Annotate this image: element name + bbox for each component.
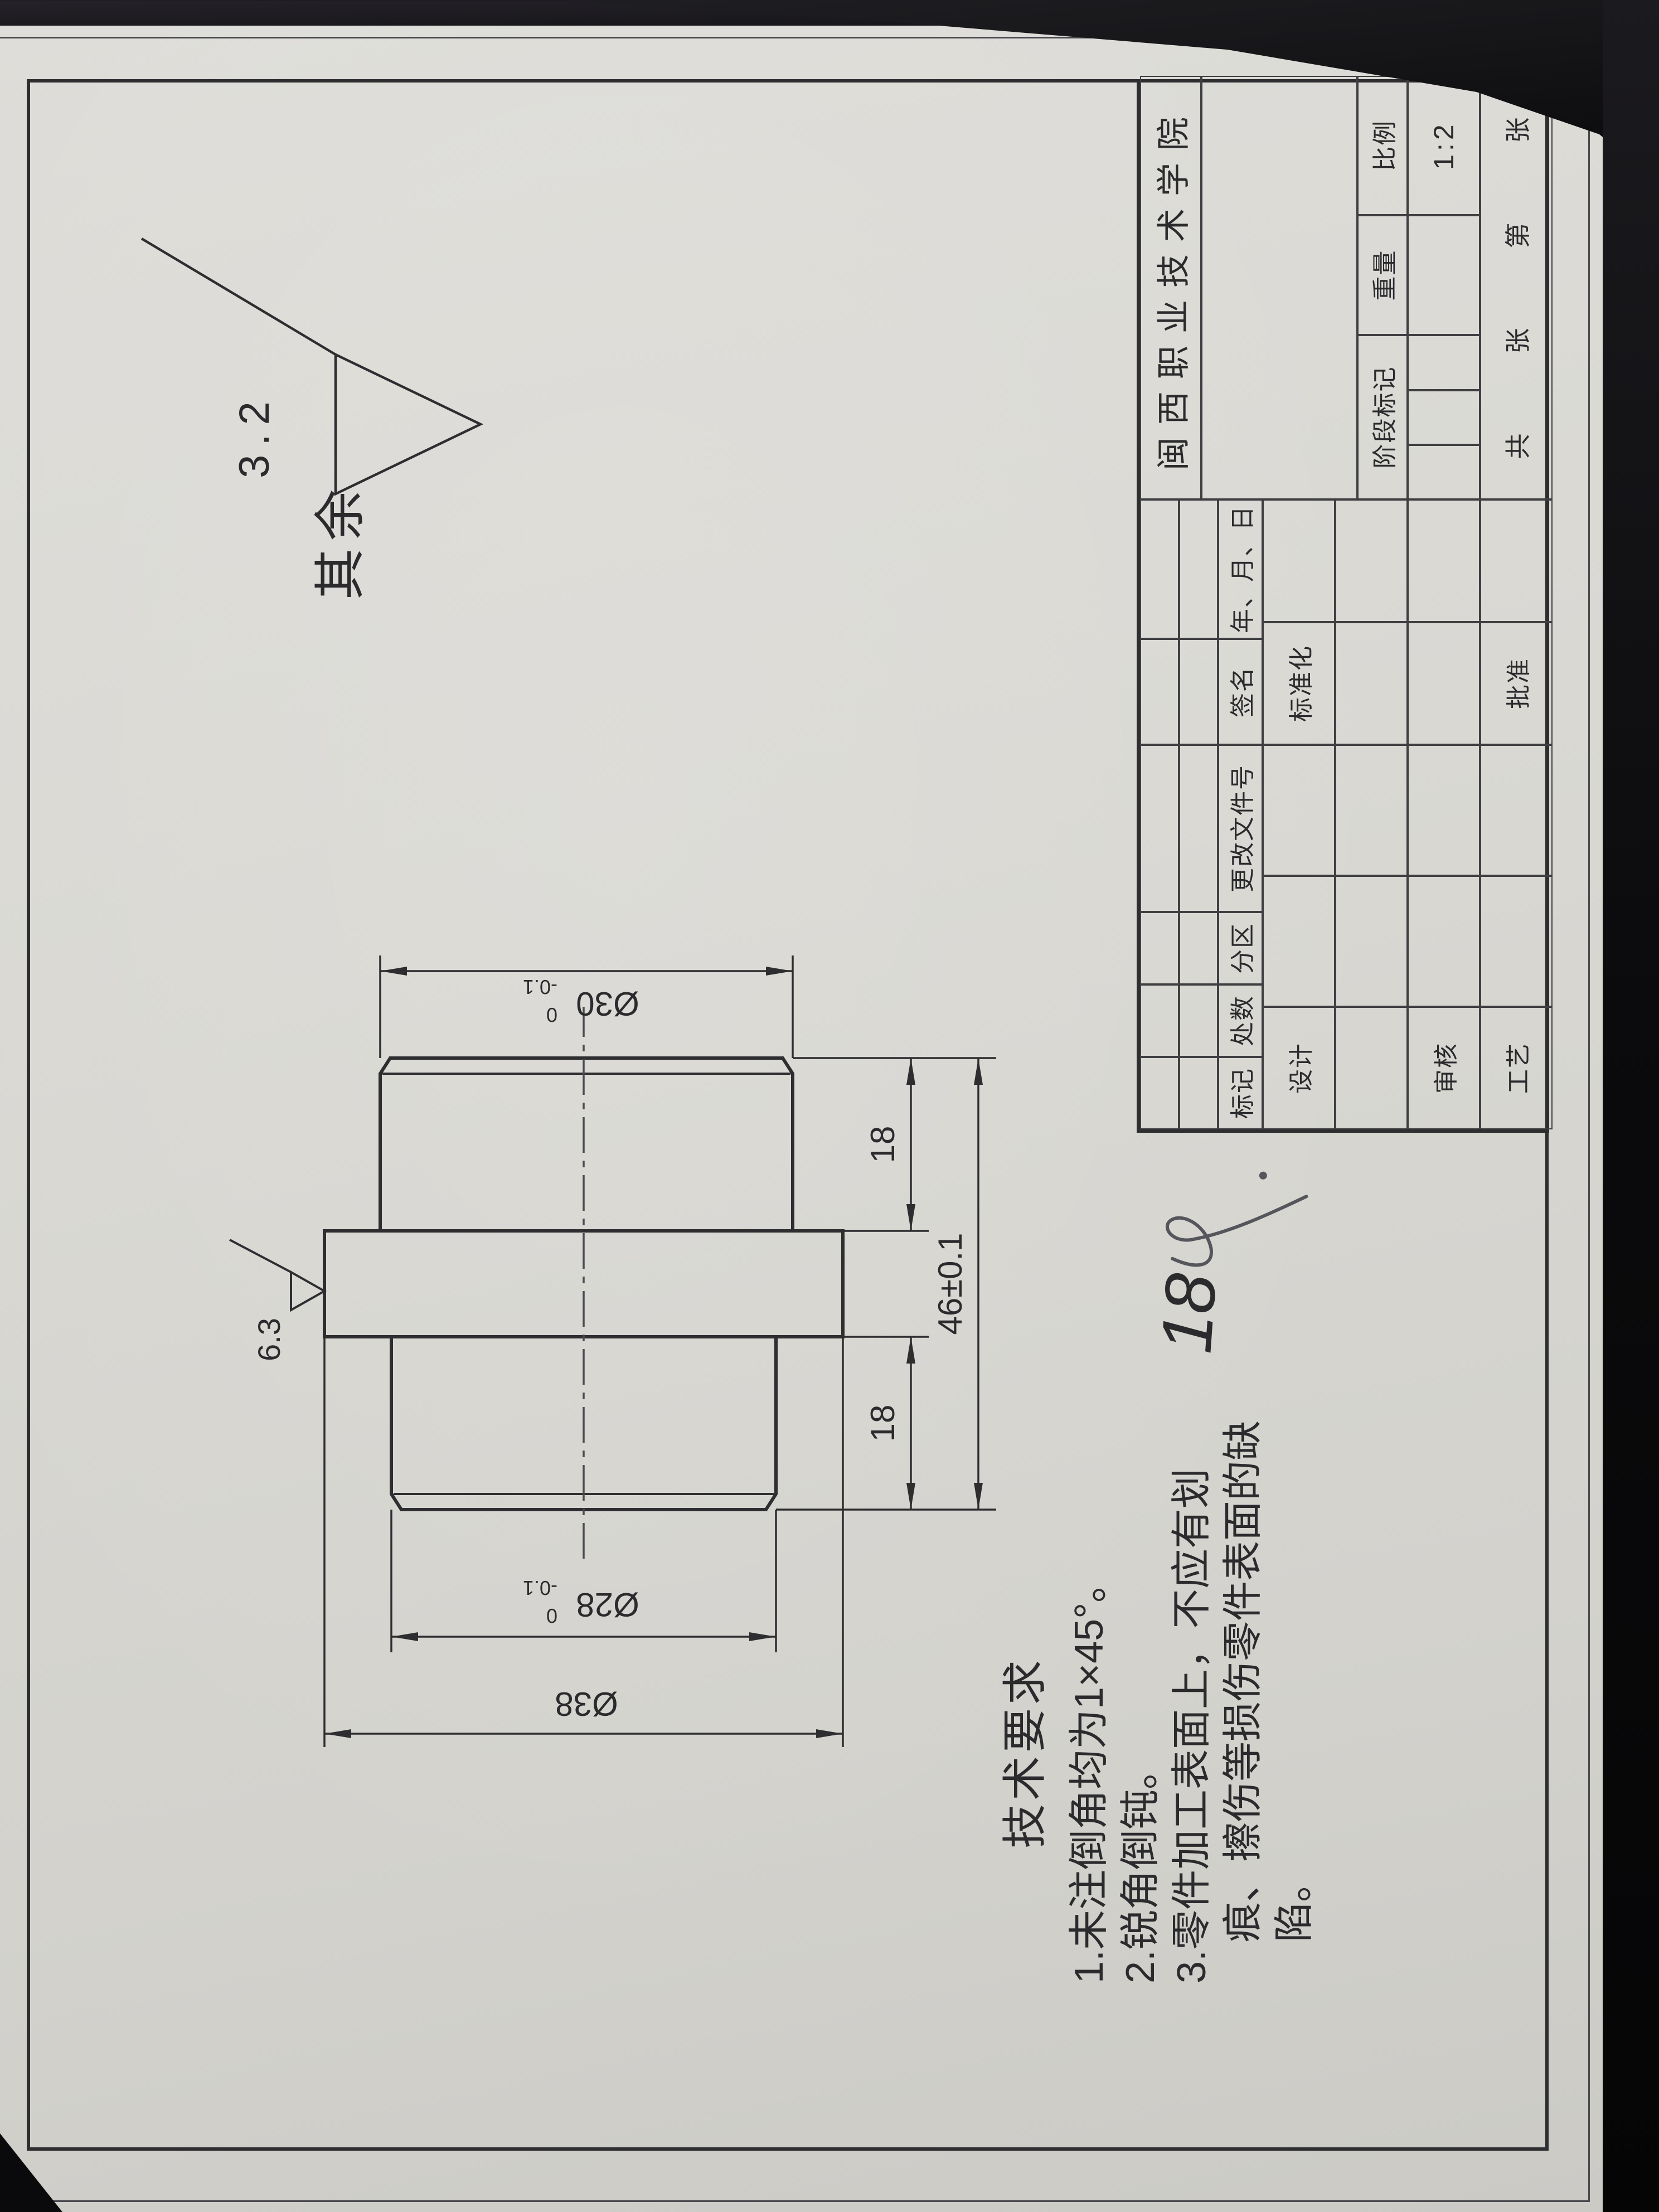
tech-req-line: 1.未注倒角均为1×45°。 bbox=[1064, 1292, 1115, 1983]
stage-mark-label: 阶段标记 bbox=[1357, 335, 1408, 499]
tech-req-line: 痕、擦伤等损伤零件表面的缺 bbox=[1217, 1292, 1269, 1942]
sig-blank-cell bbox=[1263, 876, 1335, 1007]
paper-sheet: Ø30 0 -0.1 Ø28 0 -0.1 Ø38 18 18 46±0.1 bbox=[0, 26, 1603, 2212]
weight-value-blank bbox=[1408, 215, 1480, 335]
sig-blank-cell bbox=[1408, 499, 1480, 622]
handwritten-dot bbox=[1259, 1171, 1267, 1180]
revision-header-date: 年、月、日 bbox=[1218, 499, 1263, 639]
revision-blank-cell bbox=[1179, 984, 1218, 1057]
handwritten-flourish bbox=[1165, 1187, 1306, 1272]
sheets-number-unit: 张 bbox=[1498, 117, 1535, 143]
sig-blank-cell bbox=[1408, 622, 1480, 745]
dim-18-left: 18 bbox=[864, 1405, 901, 1442]
technical-requirements: 技术要求 1.未注倒角均为1×45°。 2.锐角倒钝。 3.零件加工表面上，不应… bbox=[989, 1292, 1320, 1983]
sig-blank-cell bbox=[1263, 745, 1335, 876]
svg-text:-0.1: -0.1 bbox=[523, 976, 557, 998]
sig-blank-cell bbox=[1335, 745, 1408, 876]
role-approve: 批准 bbox=[1480, 622, 1553, 745]
sig-blank-cell bbox=[1480, 499, 1553, 622]
sig-blank-cell bbox=[1335, 1007, 1408, 1129]
dimension-arrowheads bbox=[324, 967, 983, 1738]
svg-text:Ø38: Ø38 bbox=[555, 1685, 618, 1723]
stage-mark-box bbox=[1408, 390, 1480, 445]
revision-blank-cell bbox=[1140, 499, 1179, 639]
svg-text:-0.1: -0.1 bbox=[523, 1576, 557, 1599]
tech-req-line: 3.零件加工表面上，不应有划 bbox=[1166, 1292, 1217, 1983]
revision-blank-cell bbox=[1140, 984, 1179, 1057]
role-standardization: 标准化 bbox=[1263, 622, 1335, 745]
sig-blank-cell bbox=[1335, 876, 1408, 1007]
roughness-rest-value: 3.2 bbox=[231, 392, 278, 478]
revision-blank-cell bbox=[1140, 1057, 1179, 1129]
sig-blank-cell bbox=[1480, 745, 1553, 876]
title-block: 标记 处数 分区 更改文件号 签名 年、月、日 设计 标准化 审核 bbox=[1137, 79, 1549, 1133]
tech-req-heading: 技术要求 bbox=[989, 1292, 1054, 1849]
role-process: 工艺 bbox=[1480, 1007, 1553, 1129]
stage-mark-box bbox=[1408, 335, 1480, 390]
revision-blank-cell bbox=[1140, 912, 1179, 984]
roughness-6-3-icon bbox=[230, 1240, 324, 1310]
svg-text:0: 0 bbox=[546, 1604, 557, 1627]
scale-label: 比例 bbox=[1357, 76, 1408, 215]
roughness-6-3-value: 6.3 bbox=[251, 1318, 287, 1361]
background-shadow-right-edge bbox=[1603, 0, 1659, 2212]
scale-value: 1:2 bbox=[1408, 76, 1480, 215]
roughness-rest-icon bbox=[142, 239, 481, 494]
dim-d28: Ø28 0 -0.1 bbox=[523, 1576, 639, 1627]
cylinder-30-outline bbox=[380, 1058, 793, 1231]
dim-46-total: 46±0.1 bbox=[932, 1233, 969, 1335]
sheets-total-unit: 张 bbox=[1498, 327, 1535, 354]
revision-header-count: 处数 bbox=[1218, 984, 1263, 1057]
part-name-blank-cell bbox=[1201, 76, 1357, 499]
tech-req-line: 2.锐角倒钝。 bbox=[1115, 1292, 1166, 1983]
revision-blank-cell bbox=[1140, 639, 1179, 745]
dim-d30: Ø30 0 -0.1 bbox=[523, 976, 639, 1026]
sig-blank-cell bbox=[1408, 876, 1480, 1007]
sig-blank-cell bbox=[1480, 876, 1553, 1007]
revision-blank-cell bbox=[1179, 499, 1218, 639]
sheet-count-row: 共 张 第 张 bbox=[1480, 76, 1553, 499]
dim-18-right: 18 bbox=[864, 1126, 901, 1163]
revision-blank-cell bbox=[1140, 745, 1179, 912]
revision-blank-cell bbox=[1179, 745, 1218, 912]
svg-text:Ø28: Ø28 bbox=[576, 1586, 639, 1623]
dim-d38: Ø38 bbox=[555, 1685, 618, 1723]
sig-blank-cell bbox=[1263, 499, 1335, 622]
stage-mark-box bbox=[1408, 445, 1480, 499]
revision-header-zone: 分区 bbox=[1218, 912, 1263, 984]
photo-of-engineering-drawing: Ø30 0 -0.1 Ø28 0 -0.1 Ø38 18 18 46±0.1 bbox=[0, 0, 1659, 2212]
revision-blank-cell bbox=[1179, 912, 1218, 984]
sig-blank-cell bbox=[1335, 499, 1408, 622]
revision-blank-cell bbox=[1179, 1057, 1218, 1129]
sheets-number-prefix: 第 bbox=[1498, 222, 1535, 249]
tech-req-line: 陷。 bbox=[1269, 1292, 1320, 1942]
revision-header-doc-no: 更改文件号 bbox=[1218, 745, 1263, 912]
role-design: 设计 bbox=[1263, 1007, 1335, 1129]
revision-header-mark: 标记 bbox=[1218, 1057, 1263, 1129]
drawing-sheet: Ø30 0 -0.1 Ø28 0 -0.1 Ø38 18 18 46±0.1 bbox=[0, 26, 1603, 2212]
svg-text:0: 0 bbox=[546, 1003, 557, 1026]
sig-blank-cell bbox=[1408, 745, 1480, 876]
roughness-rest-label: 其余 bbox=[312, 482, 369, 600]
svg-text:Ø30: Ø30 bbox=[576, 985, 639, 1022]
role-check: 审核 bbox=[1408, 1007, 1480, 1129]
weight-label: 重量 bbox=[1357, 215, 1408, 335]
revision-header-signature: 签名 bbox=[1218, 639, 1263, 745]
sheets-total-prefix: 共 bbox=[1498, 433, 1535, 459]
school-name: 闽西职业技术学院 bbox=[1140, 76, 1201, 499]
revision-blank-cell bbox=[1179, 639, 1218, 745]
sig-blank-cell bbox=[1335, 622, 1408, 745]
